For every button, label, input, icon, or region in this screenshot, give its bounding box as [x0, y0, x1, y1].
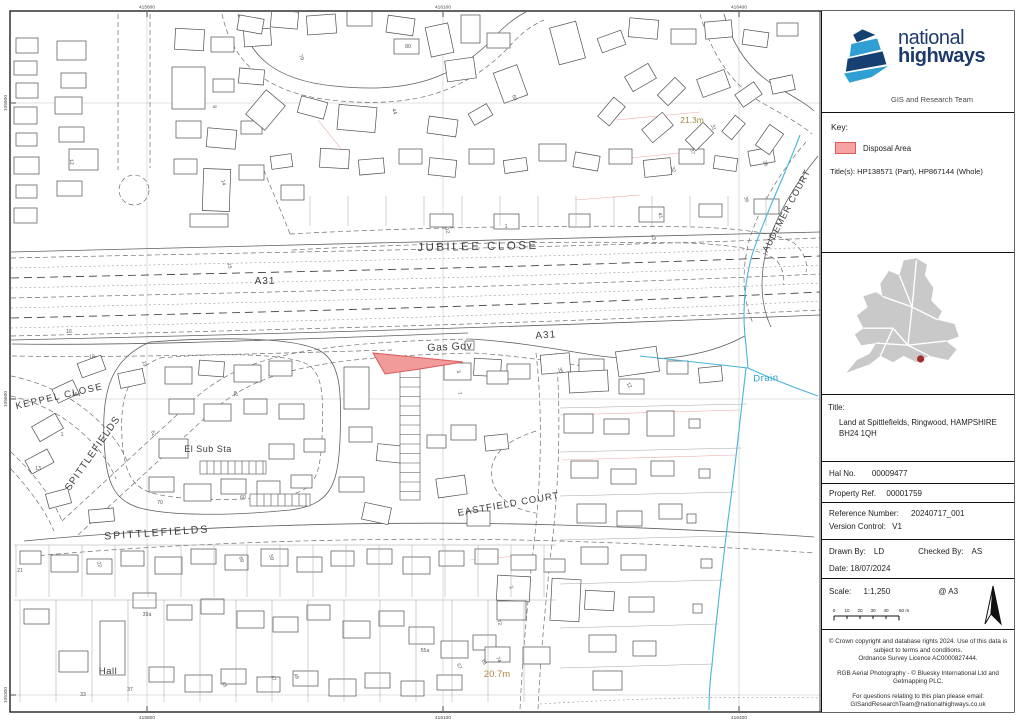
property-section: Property Ref. 00001759 — [822, 484, 1014, 503]
location-inset-section — [822, 253, 1014, 395]
logo-section: national highways GIS and Research Team — [822, 11, 1014, 113]
street-label: SPITTLEFIELDS — [63, 414, 123, 493]
house-number: 37 — [127, 687, 133, 693]
street-label: El Sub Sta — [184, 444, 232, 454]
plan-sheet: JUBILEE CLOSEA31A31Gas GovKEPPEL CLOSESP… — [0, 0, 1024, 723]
house-number: 39a — [143, 612, 152, 618]
checked-by-value: AS — [972, 547, 983, 556]
drawn-by-label: Drawn By: — [829, 547, 866, 556]
grid-label-left: 105600 — [3, 391, 9, 407]
logo-wordmark: national highways — [898, 29, 985, 66]
house-number: 15 — [226, 262, 233, 269]
house-number: 74 — [494, 656, 502, 664]
house-number: 1 — [505, 224, 508, 230]
logo-line2: highways — [898, 47, 985, 65]
drawn-section: Drawn By: LD Checked By: AS Date: 18/07/… — [822, 540, 1014, 579]
property-value: 00001759 — [886, 489, 922, 498]
house-number: 7 — [456, 391, 463, 396]
house-number: 16 — [66, 329, 72, 335]
hal-value: 00009477 — [872, 469, 908, 478]
house-number: 16a — [72, 392, 81, 398]
version-label: Version Control: — [829, 522, 886, 531]
svg-text:50 m: 50 m — [899, 608, 909, 613]
house-number: 57 — [455, 662, 463, 670]
grid-label-left: 105900 — [3, 95, 9, 111]
title-line2: BH24 1QH — [839, 428, 1006, 439]
house-number: 55a — [421, 648, 430, 654]
grid-label-top: 415800 — [139, 5, 155, 11]
hal-section: Hal No. 00009477 — [822, 462, 1014, 484]
house-number: 21 — [17, 568, 23, 574]
scale-paper-size: @ A3 — [938, 587, 958, 596]
house-number: 79 — [297, 54, 305, 62]
house-number: 12 — [443, 227, 450, 234]
svg-text:0: 0 — [833, 608, 836, 613]
house-number: 12 — [89, 354, 95, 360]
england-outline — [846, 258, 958, 373]
house-number: 43 — [220, 680, 228, 688]
a31-carriageway-lines — [11, 232, 820, 340]
grid-label-left: 105300 — [3, 687, 9, 703]
svg-text:30: 30 — [870, 608, 876, 613]
house-number: 80 — [405, 44, 411, 50]
house-number: 13 — [35, 466, 41, 472]
scale-bar: 01020304050 m — [830, 603, 950, 625]
title-value: Land at Spittlefields, Ringwood, HAMPSHI… — [839, 417, 1006, 440]
house-number: 62 — [149, 430, 157, 438]
checked-by-label: Checked By: — [918, 547, 963, 556]
house-number: 33 — [80, 692, 86, 698]
date-value: 18/07/2024 — [850, 564, 890, 573]
england-inset-map — [823, 254, 1014, 394]
house-number: 70 — [157, 500, 163, 506]
disposal-area-swatch — [835, 142, 856, 154]
drawn-by-value: LD — [874, 547, 884, 556]
national-highways-logo-icon — [844, 29, 890, 88]
house-number: 42 — [231, 390, 238, 397]
house-number: 12 — [68, 159, 74, 165]
key-section: Key: Disposal Area Title(s): HP138571 (P… — [822, 113, 1014, 253]
scale-label: Scale: — [829, 587, 851, 596]
date-label: Date: — [829, 564, 848, 573]
street-label: 20.7m — [484, 669, 510, 680]
reference-label: Reference Number: — [829, 509, 899, 518]
title-line1: Land at Spittlefields, Ringwood, HAMPSHI… — [839, 417, 1006, 428]
house-number: 36 — [742, 196, 750, 204]
house-number: 43 — [649, 234, 657, 242]
grid-label-bottom: 416400 — [731, 715, 747, 721]
street-label: Drain — [753, 373, 779, 385]
house-number: 72 — [495, 619, 503, 627]
house-number: 60 — [240, 495, 246, 501]
house-number: 44 — [390, 108, 398, 116]
hal-label: Hal No. — [829, 469, 856, 478]
location-marker-dot — [917, 355, 924, 362]
version-value: V1 — [892, 522, 902, 531]
house-number: 8 — [211, 105, 217, 109]
team-name: GIS and Research Team — [822, 95, 1014, 104]
key-heading: Key: — [831, 122, 1014, 132]
svg-text:20: 20 — [857, 608, 863, 613]
svg-text:10: 10 — [844, 608, 850, 613]
street-label: A31 — [535, 329, 557, 341]
house-number: 1 — [61, 432, 64, 438]
info-panel: national highways GIS and Research Team … — [821, 11, 1014, 712]
street-label: 21.3m — [680, 115, 704, 125]
reference-value: 20240717_001 — [911, 509, 964, 518]
street-label: A31 — [255, 276, 276, 287]
street-label: Gas Gov — [427, 340, 473, 354]
footer-section: © Crown copyright and database rights 20… — [822, 630, 1014, 712]
reference-section: Reference Number: 20240717_001 Version C… — [822, 503, 1014, 540]
street-label: JUBILEE CLOSE — [417, 240, 539, 254]
grid-label-top: 416100 — [435, 5, 451, 11]
property-label: Property Ref. — [829, 489, 876, 498]
contact-text: For questions relating to this plan plea… — [828, 693, 1008, 710]
grid-label-bottom: 416100 — [435, 715, 451, 721]
disposal-area-label: Disposal Area — [863, 144, 911, 153]
key-titles: Title(s): HP138571 (Part), HP867144 (Who… — [830, 167, 1014, 176]
title-section: Title: Land at Spittlefields, Ringwood, … — [822, 395, 1014, 462]
street-label: SPITTLEFIELDS — [104, 523, 210, 542]
scale-section: Scale: 1:1,250 @ A3 01020304050 m — [822, 579, 1014, 630]
house-number: 61 — [480, 658, 488, 666]
grid-label-top: 416400 — [731, 5, 747, 11]
house-number: 19 — [140, 360, 147, 367]
street-label: EASTFIELD COURT — [457, 490, 560, 519]
north-arrow-icon — [976, 584, 1006, 628]
title-label: Title: — [828, 403, 1014, 412]
street-label: Hall — [99, 666, 117, 677]
svg-text:40: 40 — [883, 608, 889, 613]
aerial-credit-text: RGB Aerial Photography - © Bluesky Inter… — [828, 670, 1008, 687]
grid-label-bottom: 415800 — [139, 715, 155, 721]
copyright-text: © Crown copyright and database rights 20… — [828, 638, 1008, 664]
scale-value: 1:1,250 — [863, 587, 890, 596]
house-number: 26 — [761, 160, 769, 168]
